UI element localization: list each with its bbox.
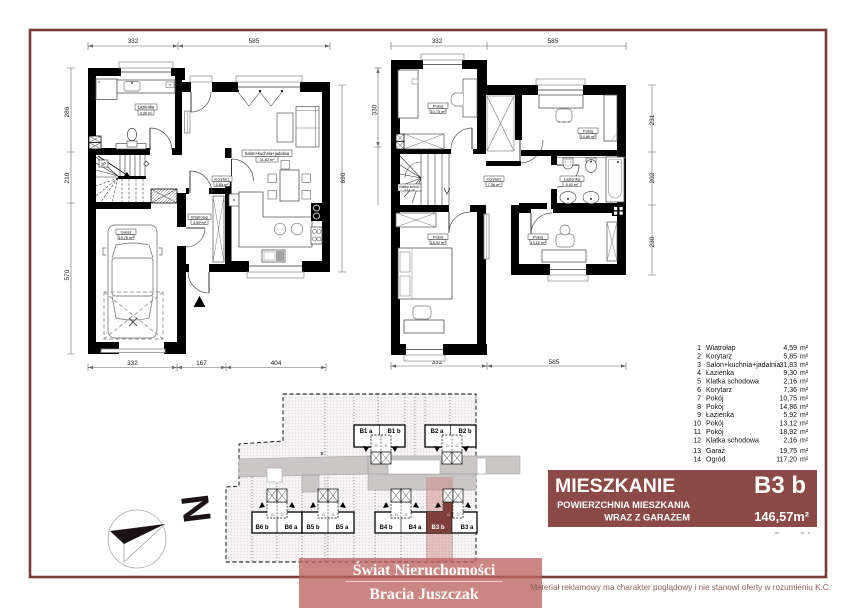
svg-text:2: 2: [697, 353, 701, 360]
svg-text:404: 404: [271, 360, 282, 367]
svg-text:8: 8: [697, 404, 701, 411]
svg-text:12: 12: [693, 437, 701, 444]
svg-text:B1 a: B1 a: [360, 429, 373, 435]
svg-text:1P: 1P: [101, 162, 107, 167]
svg-text:Pokój: Pokój: [433, 103, 443, 108]
svg-text:B3 b: B3 b: [754, 472, 806, 499]
svg-text:m²: m²: [800, 370, 809, 377]
svg-text:m²: m²: [800, 379, 809, 386]
svg-text:4,59 m²: 4,59 m²: [193, 221, 207, 225]
svg-text:Pokój: Pokój: [706, 429, 724, 436]
svg-text:9,30 m²: 9,30 m²: [140, 111, 154, 115]
svg-text:7,36: 7,36: [783, 387, 797, 394]
svg-text:m²: m²: [800, 437, 809, 444]
svg-text:B2 b: B2 b: [458, 429, 471, 435]
svg-text:Pokój: Pokój: [706, 404, 724, 411]
svg-text:Łazienka: Łazienka: [706, 370, 734, 377]
svg-text:Salon+kuchnia+jadalnia: Salon+kuchnia+jadalnia: [706, 362, 780, 369]
svg-text:332: 332: [432, 38, 443, 45]
svg-text:585: 585: [249, 38, 260, 45]
svg-text:117,20: 117,20: [776, 457, 797, 464]
svg-text:202: 202: [649, 172, 656, 183]
svg-text:6: 6: [697, 387, 701, 394]
svg-text:Wiatrołap: Wiatrołap: [706, 345, 736, 352]
svg-text:Łazienka: Łazienka: [138, 105, 155, 110]
svg-text:2,16: 2,16: [783, 379, 797, 386]
svg-text:Pokój: Pokój: [706, 395, 724, 402]
svg-text:G: G: [456, 512, 459, 517]
svg-text:18,92: 18,92: [779, 429, 797, 436]
svg-text:7: 7: [697, 395, 701, 402]
svg-text:Korytarz: Korytarz: [706, 353, 733, 360]
svg-text:4,59: 4,59: [783, 345, 797, 352]
svg-text:m²: m²: [800, 421, 809, 428]
svg-text:s: s: [321, 451, 324, 457]
svg-text:m²: m²: [800, 412, 809, 419]
svg-text:Klatka schodowa: Klatka schodowa: [706, 379, 759, 386]
svg-text:B6 a: B6 a: [285, 525, 298, 531]
svg-text:m²: m²: [800, 429, 809, 436]
svg-text:m²: m²: [800, 353, 809, 360]
svg-text:5,85 m²: 5,85 m²: [216, 183, 230, 187]
svg-text:210: 210: [64, 172, 71, 183]
svg-text:Garaż: Garaż: [706, 448, 726, 455]
svg-text:1: 1: [697, 345, 701, 352]
svg-text:m²: m²: [800, 457, 809, 464]
svg-text:Bracia Juszczak: Bracia Juszczak: [369, 586, 478, 603]
svg-text:B3 b: B3 b: [431, 525, 444, 531]
svg-text:MIESZKANIE: MIESZKANIE: [555, 475, 675, 497]
svg-text:Świat Nieruchomości: Świat Nieruchomości: [353, 560, 496, 579]
svg-text:18,92 m²: 18,92 m²: [431, 241, 447, 245]
svg-text:G: G: [455, 443, 458, 448]
svg-text:Garaż: Garaż: [121, 229, 132, 234]
svg-text:B5 b: B5 b: [306, 525, 319, 531]
svg-text:14: 14: [693, 457, 701, 464]
svg-text:7,36 m²: 7,36 m²: [488, 183, 502, 187]
svg-text:13: 13: [693, 448, 701, 455]
svg-text:m²: m²: [800, 387, 809, 394]
svg-text:146,57m²: 146,57m²: [754, 509, 809, 524]
svg-text:5,92: 5,92: [783, 412, 797, 419]
svg-text:11: 11: [694, 429, 701, 436]
svg-text:G: G: [271, 512, 274, 517]
svg-text:G: G: [447, 512, 450, 517]
svg-text:14,86: 14,86: [779, 404, 797, 411]
svg-text:Wiatrołap: Wiatrołap: [191, 214, 209, 219]
svg-text:690: 690: [340, 172, 347, 183]
svg-text:2,16: 2,16: [783, 437, 797, 444]
svg-text:10: 10: [693, 421, 701, 428]
svg-text:B4 a: B4 a: [409, 525, 422, 531]
svg-text:332: 332: [128, 38, 139, 45]
svg-text:13,12 m²: 13,12 m²: [531, 241, 547, 245]
svg-text:231: 231: [649, 114, 656, 125]
svg-text:m²: m²: [800, 362, 809, 369]
svg-text:Salon+kuchnia+jadalnia: Salon+kuchnia+jadalnia: [245, 151, 290, 156]
svg-text:G: G: [446, 443, 449, 448]
svg-text:19,75 m²: 19,75 m²: [119, 236, 135, 240]
svg-text:m²: m²: [800, 448, 809, 455]
svg-text:31,83: 31,83: [779, 362, 797, 369]
svg-text:Pokój: Pokój: [433, 234, 443, 239]
svg-text:m²: m²: [800, 345, 809, 352]
svg-text:286: 286: [64, 106, 71, 117]
svg-text:4: 4: [697, 370, 701, 377]
svg-text:G: G: [384, 443, 387, 448]
svg-text:332: 332: [127, 360, 138, 367]
svg-text:B4 b: B4 b: [379, 525, 392, 531]
svg-text:B3 a: B3 a: [461, 525, 474, 531]
svg-text:Korytarz: Korytarz: [487, 176, 502, 181]
svg-text:330: 330: [372, 104, 379, 115]
svg-text:Pokój: Pokój: [583, 128, 593, 133]
svg-text:230: 230: [649, 236, 656, 247]
svg-text:585: 585: [548, 38, 559, 45]
svg-text:B5 a: B5 a: [336, 525, 349, 531]
svg-text:10,75 m²: 10,75 m²: [431, 110, 447, 114]
svg-text:Klatka schodowa: Klatka schodowa: [706, 437, 759, 444]
svg-text:19,75: 19,75: [779, 448, 797, 455]
svg-text:5: 5: [697, 379, 701, 386]
svg-text:Materiał reklamowy ma charakte: Materiał reklamowy ma charakter poglądow…: [530, 583, 831, 592]
svg-text:Pokój: Pokój: [533, 234, 543, 239]
svg-text:9,30: 9,30: [783, 370, 797, 377]
svg-text:3: 3: [697, 362, 701, 369]
svg-text:Ogród: Ogród: [706, 457, 726, 464]
svg-text:m²: m²: [800, 395, 809, 402]
svg-text:B2 a: B2 a: [431, 429, 444, 435]
svg-text:G: G: [404, 512, 407, 517]
svg-text:N: N: [174, 492, 220, 525]
svg-text:14,86 m²: 14,86 m²: [581, 135, 597, 139]
svg-text:2,16 m²: 2,16 m²: [404, 188, 414, 192]
svg-text:B1 b: B1 b: [387, 429, 400, 435]
svg-text:13,12: 13,12: [779, 421, 797, 428]
svg-text:9: 9: [697, 412, 701, 419]
svg-text:Korytarz: Korytarz: [215, 176, 230, 181]
svg-text:Korytarz: Korytarz: [706, 387, 733, 394]
svg-text:POWIERZCHNIA MIESZKANIA: POWIERZCHNIA MIESZKANIA: [557, 500, 690, 510]
svg-text:10,75: 10,75: [779, 395, 797, 402]
svg-text:G: G: [331, 512, 334, 517]
svg-text:5,85: 5,85: [783, 353, 797, 360]
svg-text:m²: m²: [800, 404, 809, 411]
svg-text:570: 570: [64, 269, 71, 280]
svg-text:G: G: [395, 512, 398, 517]
svg-text:31,83 m²: 31,83 m²: [260, 158, 276, 162]
svg-text:Łazienka: Łazienka: [564, 176, 581, 181]
svg-text:5,92 m²: 5,92 m²: [566, 183, 580, 187]
svg-text:G: G: [280, 512, 283, 517]
svg-text:167: 167: [196, 360, 207, 367]
svg-text:585: 585: [549, 359, 560, 366]
svg-text:G: G: [322, 512, 325, 517]
svg-text:Łazienka: Łazienka: [706, 412, 734, 419]
svg-text:G: G: [375, 443, 378, 448]
svg-text:WRAZ Z GARAŻEM: WRAZ Z GARAŻEM: [604, 513, 690, 523]
svg-text:B6 b: B6 b: [255, 525, 268, 531]
svg-text:Pokój: Pokój: [706, 421, 724, 428]
